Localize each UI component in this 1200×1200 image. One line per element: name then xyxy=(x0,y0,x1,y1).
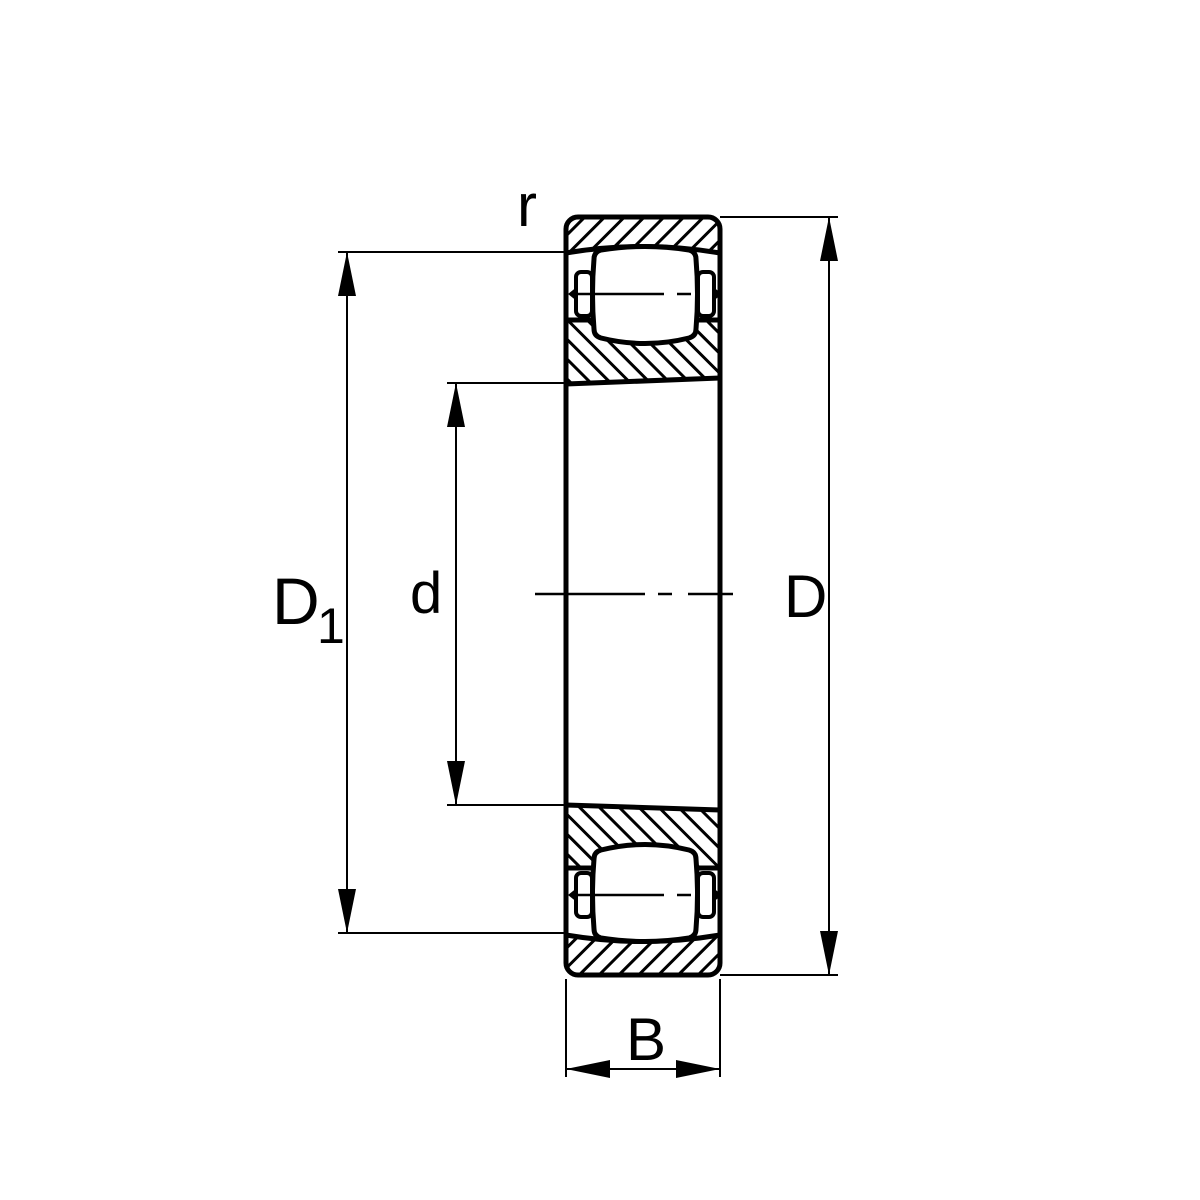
dimension-outer-d: D xyxy=(720,217,838,975)
arrowhead-d-up xyxy=(447,383,465,427)
label-r: r xyxy=(517,172,537,239)
barrel-roller-bottom xyxy=(593,845,698,942)
label-d: d xyxy=(410,561,442,626)
arrowhead-d1-down xyxy=(338,889,356,933)
label-B: B xyxy=(626,1006,666,1073)
arrowhead-D-up xyxy=(820,217,838,261)
bearing-dimension-drawing: D 1 d D B r xyxy=(0,0,1200,1200)
bearing-cross-section-svg: D 1 d D B r xyxy=(0,0,1200,1200)
arrowhead-d-down xyxy=(447,761,465,805)
label-D: D xyxy=(784,563,827,630)
arrowhead-B-right xyxy=(676,1060,720,1078)
label-d1: D xyxy=(272,564,320,638)
arrowhead-B-left xyxy=(566,1060,610,1078)
cage-pocket-top-right xyxy=(698,272,714,316)
label-d1-subscript: 1 xyxy=(317,598,345,654)
arrowhead-D-down xyxy=(820,931,838,975)
arrowhead-d1-up xyxy=(338,252,356,296)
cage-pocket-bottom-right xyxy=(698,873,714,917)
dimension-b: B xyxy=(566,979,720,1078)
